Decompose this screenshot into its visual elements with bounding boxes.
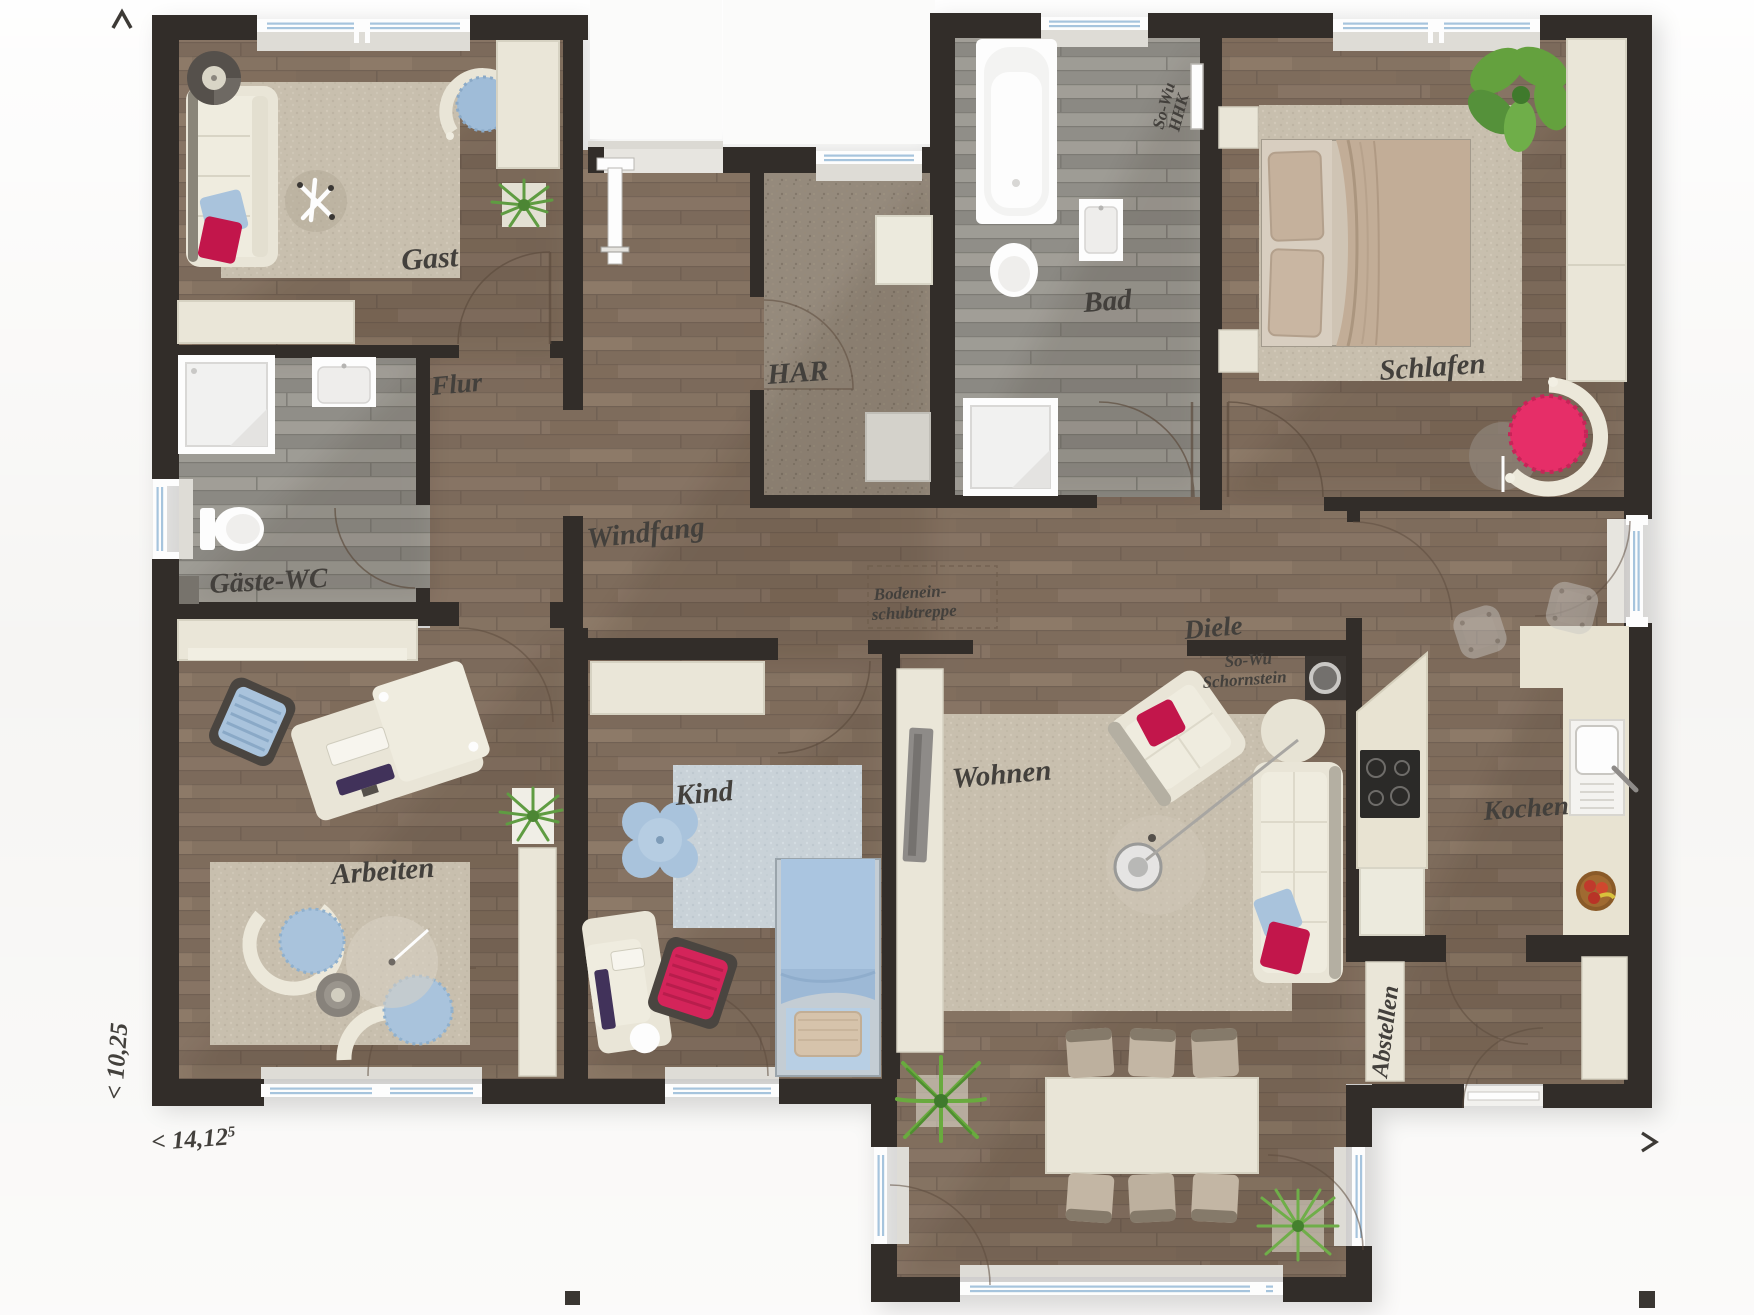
svg-text:Flur: Flur (429, 367, 484, 401)
svg-text:Gast: Gast (400, 240, 460, 277)
svg-text:< 10,25: < 10,25 (101, 1022, 133, 1100)
svg-text:Bad: Bad (1081, 284, 1133, 319)
svg-text:HAR: HAR (765, 355, 829, 391)
svg-text:Bodenein-: Bodenein- (872, 581, 947, 604)
svg-text:Kind: Kind (673, 775, 735, 812)
svg-text:Gäste-WC: Gäste-WC (209, 563, 329, 600)
svg-text:Kochen: Kochen (1481, 790, 1569, 826)
svg-text:Diele: Diele (1182, 610, 1244, 645)
